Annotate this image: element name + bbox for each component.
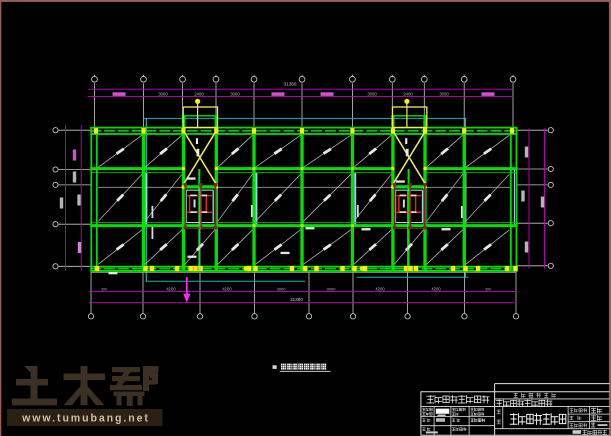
- svg-text:2400: 2400: [403, 92, 413, 97]
- svg-text:300: 300: [101, 288, 107, 292]
- svg-text:300: 300: [485, 288, 491, 292]
- svg-text:www.tumubang.net: www.tumubang.net: [21, 413, 150, 425]
- svg-text:4200: 4200: [166, 287, 176, 292]
- svg-text:3000: 3000: [439, 92, 449, 97]
- svg-text:3000: 3000: [327, 287, 337, 292]
- svg-text:31380: 31380: [284, 82, 297, 87]
- svg-text:3000: 3000: [230, 92, 240, 97]
- svg-text:31380: 31380: [290, 297, 303, 302]
- svg-text:4200: 4200: [222, 287, 232, 292]
- svg-text:3000: 3000: [277, 287, 287, 292]
- svg-text:3000: 3000: [158, 92, 168, 97]
- svg-text:4200: 4200: [431, 287, 441, 292]
- svg-text:4200: 4200: [375, 287, 385, 292]
- svg-text:3000: 3000: [367, 92, 377, 97]
- svg-text:2400: 2400: [194, 92, 204, 97]
